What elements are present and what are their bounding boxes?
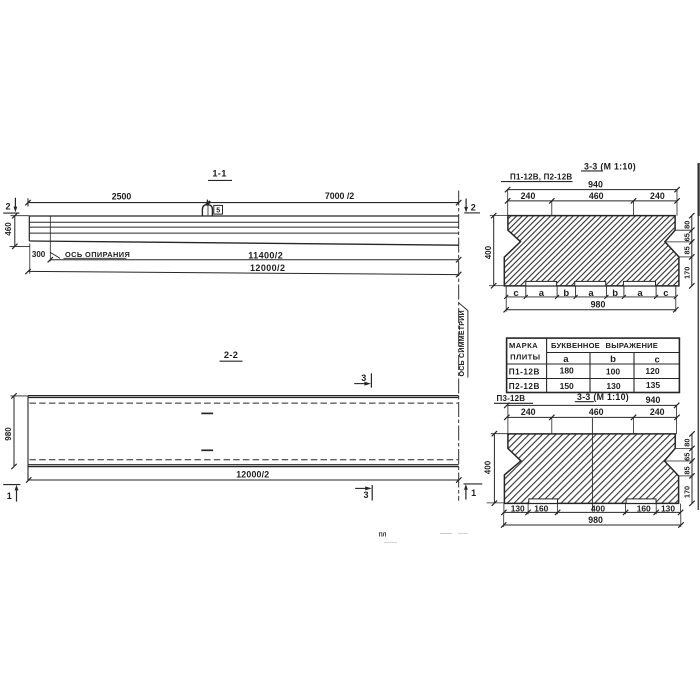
svg-text:85: 85 [682,246,691,254]
svg-text:65: 65 [683,453,692,461]
svg-text:80: 80 [683,438,692,446]
svg-text:ОСЬ СИММЕТРИИ: ОСЬ СИММЕТРИИ [458,310,466,376]
svg-text:3-3 (М 1:10): 3-3 (М 1:10) [577,392,629,402]
svg-text:ПЛ: ПЛ [379,533,387,539]
svg-text:170: 170 [682,267,691,279]
svg-text:c: c [513,288,518,299]
svg-text:240: 240 [650,407,665,417]
svg-text:a: a [637,288,643,299]
svg-text:b: b [612,288,618,299]
svg-text:980: 980 [588,515,603,525]
svg-text:1: 1 [7,491,12,501]
svg-text:БУКВЕННОЕ: БУКВЕННОЕ [551,341,600,350]
svg-text:400: 400 [484,245,493,259]
svg-text:b: b [563,288,569,299]
svg-text:12000/2: 12000/2 [236,470,269,480]
svg-text:a: a [563,354,569,365]
svg-text:b: b [610,354,616,365]
svg-text:160: 160 [534,503,548,513]
svg-text:3: 3 [363,490,368,500]
svg-text:170: 170 [683,486,692,498]
svg-text:3-3 (М 1:10): 3-3 (М 1:10) [584,161,636,171]
svg-text:85: 85 [683,466,692,474]
svg-text:940: 940 [646,395,661,405]
svg-text:120: 120 [645,366,659,376]
svg-text:980: 980 [4,427,13,441]
svg-text:12000/2: 12000/2 [250,263,285,273]
svg-text:П2-12В: П2-12В [509,382,540,391]
svg-text:460: 460 [4,222,13,236]
svg-text:80: 80 [682,221,691,229]
svg-text:ПЛИТЫ: ПЛИТЫ [510,352,540,361]
svg-text:130: 130 [661,503,675,513]
svg-text:11400/2: 11400/2 [248,250,283,260]
svg-text:980: 980 [591,299,606,309]
svg-text:65: 65 [682,233,691,241]
svg-text:ВЫРАЖЕНИЕ: ВЫРАЖЕНИЕ [606,341,659,350]
svg-text:400: 400 [484,460,493,474]
svg-text:300: 300 [32,250,46,259]
svg-text:1: 1 [471,488,476,498]
svg-text:c: c [655,354,660,365]
svg-text:2500: 2500 [112,192,132,202]
svg-text:460: 460 [589,191,604,201]
svg-text:П1-12В, П2-12В: П1-12В, П2-12В [510,173,572,182]
svg-text:100: 100 [606,366,620,376]
svg-text:240: 240 [650,191,665,201]
svg-text:3: 3 [361,373,366,383]
svg-text:МАРКА: МАРКА [509,341,538,350]
svg-text:240: 240 [521,407,536,417]
svg-text:a: a [539,288,545,299]
svg-text:2-2: 2-2 [224,350,238,360]
svg-text:П3-12В: П3-12В [497,394,526,403]
svg-text:2: 2 [471,202,476,212]
svg-text:П1-12В: П1-12В [509,367,540,376]
svg-text:1-1: 1-1 [212,169,226,179]
svg-text:180: 180 [560,366,574,376]
svg-text:135: 135 [646,380,660,390]
svg-text:150: 150 [560,381,574,391]
svg-text:460: 460 [589,407,604,417]
svg-text:130: 130 [511,503,525,513]
svg-text:7000 /2: 7000 /2 [325,191,354,201]
svg-text:400: 400 [591,503,605,513]
svg-text:ОСЬ ОПИРАНИЯ: ОСЬ ОПИРАНИЯ [65,250,130,259]
svg-text:2: 2 [5,201,10,211]
svg-text:240: 240 [521,191,536,201]
svg-text:a: a [588,288,594,299]
svg-text:940: 940 [588,180,603,190]
svg-text:160: 160 [637,503,651,513]
svg-text:130: 130 [606,381,620,391]
svg-text:c: c [663,288,668,299]
svg-text:5: 5 [216,207,220,214]
